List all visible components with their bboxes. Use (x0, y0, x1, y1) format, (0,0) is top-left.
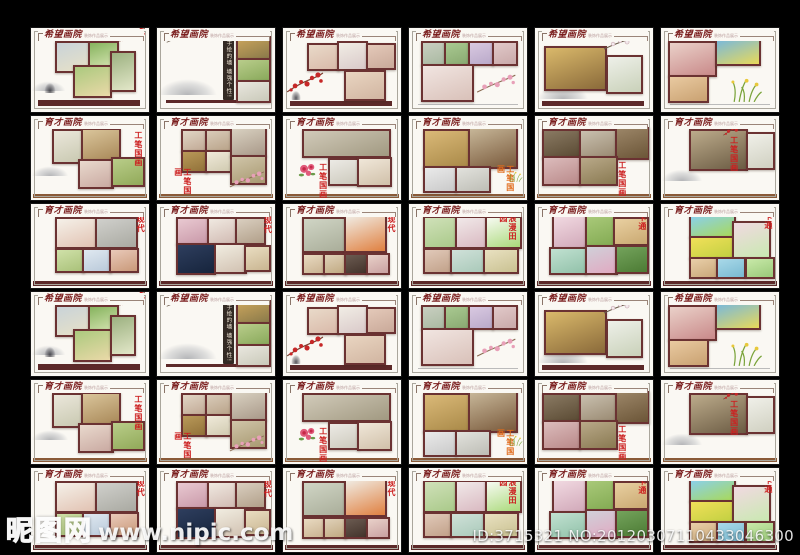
photo-thumb (81, 392, 122, 425)
photo-thumb (542, 129, 581, 159)
header-bracket (668, 473, 673, 481)
page-header: 希望画院装饰作品展示 (164, 29, 270, 41)
photo-thumb (444, 41, 470, 66)
photo-thumb (307, 307, 341, 335)
vertical-slogan-panel: 手绘的墙 墙强个性! (223, 38, 234, 100)
header-line (110, 300, 144, 301)
photo-thumb (615, 127, 650, 160)
header-line (362, 388, 396, 389)
header-bracket (290, 121, 295, 129)
shelf-bar (537, 281, 650, 286)
photo-thumb (230, 419, 267, 449)
nipic-url: www.nipic.com (98, 522, 293, 545)
page-header: 育才画院装饰作品展示 (290, 117, 396, 129)
header-line (614, 36, 648, 37)
header-line (488, 212, 522, 213)
style-calligraphy-label: 工笔国画 (496, 429, 514, 464)
header-line (362, 476, 396, 477)
page-subtitle: 装饰作品展示 (84, 473, 108, 479)
page-subtitle: 装饰作品展示 (462, 121, 486, 127)
photo-thumb (109, 248, 139, 273)
shelf-bar (290, 101, 391, 106)
header-line (236, 36, 270, 37)
page-header: 希望画院装饰作品展示 (668, 293, 774, 305)
photo-thumb (668, 75, 709, 103)
style-calligraphy-label: 浪漫田园 (499, 478, 517, 508)
brochure-page-thumb: 育才画院装饰作品展示工笔国画 (31, 116, 149, 200)
header-line (362, 124, 396, 125)
page-subtitle: 装饰作品展示 (84, 209, 108, 215)
page-header: 希望画院装饰作品展示 (290, 293, 396, 305)
page-title: 育才画院 (422, 119, 460, 128)
page-title: 育才画院 (296, 383, 334, 392)
page-header: 育才画院装饰作品展示 (542, 381, 648, 393)
vertical-slogan-panel: 手绘的墙 墙强个性! (223, 302, 234, 364)
brochure-page-thumb: 希望画院装饰作品展示 (31, 28, 149, 112)
photo-thumb (236, 80, 271, 103)
photo-thumb (423, 248, 453, 275)
ink-wash-mountains-decor (31, 165, 69, 176)
photo-thumb (668, 41, 717, 77)
ink-rock-decor (43, 346, 57, 357)
photo-thumb (302, 481, 347, 517)
header-line (488, 388, 522, 389)
style-calligraphy-label: 现代 (136, 215, 145, 233)
photo-thumb (745, 257, 775, 279)
header-line (488, 300, 522, 301)
header-bracket (668, 209, 673, 217)
style-calligraphy-label: 工笔国画 (618, 425, 627, 461)
page-title: 育才画院 (170, 471, 208, 480)
photo-thumb (73, 329, 111, 362)
page-header: 希望画院装饰作品展示 (416, 293, 522, 305)
photo-thumb (81, 128, 122, 161)
photo-thumb (423, 129, 469, 169)
photo-thumb (542, 393, 581, 423)
photo-thumb (689, 479, 735, 502)
page-header: 希望画院装饰作品展示 (416, 29, 522, 41)
shelf-bar (33, 194, 146, 198)
photo-thumb (492, 41, 518, 66)
header-bracket (542, 473, 547, 481)
page-header: 育才画院装饰作品展示 (290, 381, 396, 393)
header-bracket (668, 385, 673, 393)
photo-thumb (366, 307, 396, 334)
header-line (488, 124, 522, 125)
grass-flowers-decor (729, 77, 767, 102)
header-bracket (290, 33, 295, 41)
photo-thumb (423, 430, 457, 457)
page-subtitle: 装饰作品展示 (210, 33, 234, 39)
photo-thumb (205, 393, 233, 416)
page-subtitle: 装饰作品展示 (336, 33, 360, 39)
page-subtitle: 装饰作品展示 (336, 297, 360, 303)
header-line (740, 212, 774, 213)
photo-thumb (615, 245, 649, 273)
header-line (614, 212, 648, 213)
photo-thumb (328, 422, 360, 450)
page-header: 希望画院装饰作品展示 (290, 29, 396, 41)
header-bracket (38, 473, 43, 481)
style-calligraphy-label: 工笔国画 (729, 136, 738, 172)
photo-thumb (544, 46, 607, 90)
photo-thumb (176, 217, 210, 245)
photo-thumb (468, 125, 518, 168)
thumbnail-grid: 希望画院装饰作品展示希望画院装饰作品展示手绘的墙 墙强个性!希望画院装饰作品展示… (0, 0, 800, 555)
photo-thumb (455, 430, 491, 457)
header-line (362, 36, 396, 37)
shelf-bar (33, 458, 146, 462)
header-line (110, 36, 144, 37)
header-line (740, 300, 774, 301)
shelf-bar (159, 545, 272, 550)
header-line (488, 36, 522, 37)
ink-wash-mountains-decor (31, 429, 69, 440)
photo-thumb (214, 243, 248, 273)
page-subtitle: 装饰作品展示 (462, 209, 486, 215)
style-calligraphy-label: 现代 (136, 479, 145, 497)
shelf-bar (285, 281, 398, 286)
header-bracket (38, 209, 43, 217)
plum-blossom-decor (285, 70, 325, 95)
photo-thumb (95, 481, 138, 514)
photo-thumb (205, 150, 233, 173)
shelf-bar (159, 281, 272, 286)
page-header: 希望画院装饰作品展示 (542, 29, 648, 41)
style-calligraphy-label: 工笔国画 (134, 131, 143, 167)
brochure-page-thumb: 育才画院装饰作品展示卡通 (661, 204, 779, 288)
ink-rock-decor (290, 90, 302, 99)
shelf-bar (537, 458, 650, 462)
photo-thumb (423, 166, 457, 193)
brochure-page-thumb: 育才画院装饰作品展示工笔国画 (283, 116, 401, 200)
brochure-page-thumb: 希望画院装饰作品展示 (409, 28, 527, 112)
photo-thumb (585, 245, 619, 275)
style-calligraphy-label: 工笔国画 (134, 395, 143, 431)
page-subtitle: 装饰作品展示 (336, 385, 360, 391)
photo-thumb (205, 414, 233, 437)
header-bracket (416, 209, 421, 217)
header-bracket (542, 33, 547, 41)
header-bracket (38, 121, 43, 129)
photo-thumb (357, 157, 392, 187)
page-header: 育才画院装饰作品展示 (164, 117, 270, 129)
photo-thumb (715, 39, 760, 66)
photo-thumb (78, 159, 114, 189)
page-subtitle: 装饰作品展示 (588, 33, 612, 39)
brochure-page-thumb: 育才画院装饰作品展示现代 (157, 204, 275, 288)
page-title: 育才画院 (674, 207, 712, 216)
ink-wash-mountains-decor (157, 341, 218, 359)
ink-wash-mountains-decor (31, 344, 66, 355)
photo-thumb (236, 58, 271, 81)
header-bracket (416, 297, 421, 305)
brochure-page-thumb: 育才画院装饰作品展示工笔国画 (409, 380, 527, 464)
shelf-bar (290, 365, 391, 370)
header-line (614, 476, 648, 477)
brochure-page-thumb: 希望画院装饰作品展示 (31, 292, 149, 376)
photo-thumb (492, 305, 518, 330)
header-bracket (416, 385, 421, 393)
header-line (236, 388, 270, 389)
page-subtitle: 装饰作品展示 (84, 121, 108, 127)
header-bracket (668, 121, 673, 129)
photo-thumb (344, 479, 387, 517)
header-bracket (542, 385, 547, 393)
shelf-bar (670, 104, 769, 106)
photo-thumb (421, 305, 447, 330)
photo-thumb (423, 480, 458, 513)
page-title: 育才画院 (170, 383, 208, 392)
header-bracket (164, 209, 169, 217)
page-header: 希望画院装饰作品展示 (164, 293, 270, 305)
page-title: 育才画院 (422, 383, 460, 392)
photo-thumb (455, 166, 491, 193)
header-bracket (290, 473, 295, 481)
header-bracket (416, 121, 421, 129)
page-title: 育才画院 (296, 471, 334, 480)
page-title: 育才画院 (674, 383, 712, 392)
page-subtitle: 装饰作品展示 (588, 297, 612, 303)
header-bracket (290, 385, 295, 393)
page-title: 育才画院 (44, 383, 82, 392)
photo-thumb (483, 248, 519, 275)
ink-rock-decor (290, 354, 302, 363)
brochure-page-thumb: 育才画院装饰作品展示工笔国画 (157, 380, 275, 464)
photo-thumb (302, 129, 391, 158)
header-line (236, 124, 270, 125)
style-calligraphy-label: 工笔国画 (174, 432, 192, 464)
page-header: 希望画院装饰作品展示 (38, 29, 144, 41)
shelf-bar (542, 101, 643, 106)
photo-thumb (82, 248, 112, 273)
photo-thumb (176, 481, 210, 509)
photo-thumb (421, 64, 475, 102)
page-subtitle: 装饰作品展示 (462, 33, 486, 39)
page-title: 希望画院 (170, 295, 208, 304)
page-title: 希望画院 (422, 31, 460, 40)
header-line (110, 124, 144, 125)
photo-thumb (689, 236, 735, 259)
style-calligraphy-label: 现代 (387, 479, 396, 497)
style-calligraphy-label: 现代 (387, 215, 396, 233)
ink-rock-decor (43, 82, 57, 93)
photo-thumb (585, 479, 616, 513)
brochure-page-thumb: 希望画院装饰作品展示 (535, 28, 653, 112)
page-title: 希望画院 (296, 295, 334, 304)
photo-thumb (716, 257, 746, 279)
header-line (614, 300, 648, 301)
photo-thumb (455, 480, 487, 513)
header-bracket (164, 33, 169, 41)
page-header: 育才画院装饰作品展示 (416, 205, 522, 217)
photo-thumb (689, 257, 718, 279)
brochure-page-thumb: 希望画院装饰作品展示 (535, 292, 653, 376)
page-subtitle: 装饰作品展示 (588, 121, 612, 127)
page-header: 育才画院装饰作品展示 (290, 205, 396, 217)
page-subtitle: 装饰作品展示 (336, 121, 360, 127)
style-calligraphy-label: 工笔国画 (318, 163, 327, 199)
header-line (236, 212, 270, 213)
header-line (488, 476, 522, 477)
photo-thumb (55, 248, 85, 273)
header-line (236, 300, 270, 301)
page-header: 希望画院装饰作品展示 (668, 29, 774, 41)
photo-thumb (606, 55, 643, 94)
shelf-bar (537, 545, 650, 550)
photo-thumb (344, 215, 387, 253)
photo-thumb (579, 129, 618, 159)
photo-thumb (366, 253, 390, 275)
brochure-page-thumb: 育才画院装饰作品展示浪漫田园 (409, 204, 527, 288)
photo-thumb (455, 216, 487, 249)
header-bracket (164, 297, 169, 305)
page-title: 希望画院 (674, 31, 712, 40)
page-header: 育才画院装饰作品展示 (164, 469, 270, 481)
shelf-bar (411, 545, 524, 550)
shelf-bar (33, 281, 146, 286)
header-line (110, 476, 144, 477)
brochure-page-thumb: 育才画院装饰作品展示工笔国画 (157, 116, 275, 200)
page-header: 育才画院装饰作品展示 (668, 117, 774, 129)
style-calligraphy-label: 工笔国画 (618, 161, 627, 197)
photo-thumb (366, 517, 390, 539)
photo-thumb (235, 217, 266, 245)
brochure-page-thumb: 育才画院装饰作品展示工笔国画 (283, 380, 401, 464)
page-subtitle: 装饰作品展示 (714, 33, 738, 39)
shelf-bar (285, 194, 398, 198)
shelf-bar (537, 194, 650, 198)
photo-thumb (110, 315, 136, 357)
photo-thumb (176, 243, 217, 275)
photo-thumb (689, 500, 735, 523)
page-subtitle: 装饰作品展示 (588, 209, 612, 215)
page-subtitle: 装饰作品展示 (210, 209, 234, 215)
photo-thumb (585, 215, 616, 249)
page-subtitle: 装饰作品展示 (462, 297, 486, 303)
style-calligraphy-label: 工笔国画 (318, 427, 327, 463)
shelf-bar (38, 100, 139, 106)
header-bracket (290, 209, 295, 217)
brochure-page-thumb: 希望画院装饰作品展示 (283, 28, 401, 112)
photo-thumb (302, 393, 391, 422)
photo-thumb (302, 217, 347, 253)
photo-thumb (421, 328, 475, 366)
style-calligraphy-label: 工笔国画 (174, 168, 192, 200)
photo-thumb (423, 393, 469, 433)
page-header: 育才画院装饰作品展示 (164, 381, 270, 393)
brochure-page-thumb: 育才画院装饰作品展示现代 (283, 204, 401, 288)
photo-thumb (746, 132, 775, 170)
page-header: 希望画院装饰作品展示 (38, 293, 144, 305)
photo-thumb (328, 158, 360, 186)
page-header: 育才画院装饰作品展示 (542, 205, 648, 217)
page-subtitle: 装饰作品展示 (210, 121, 234, 127)
style-calligraphy-label: 现代 (263, 480, 272, 498)
page-header: 育才画院装饰作品展示 (290, 469, 396, 481)
header-bracket (416, 473, 421, 481)
photo-thumb (181, 393, 209, 416)
photo-thumb (230, 155, 267, 185)
photo-thumb (423, 512, 453, 539)
photo-thumb (421, 41, 447, 66)
brochure-page-thumb: 希望画院装饰作品展示 (661, 292, 779, 376)
page-subtitle: 装饰作品展示 (714, 297, 738, 303)
header-line (362, 300, 396, 301)
page-title: 育才画院 (548, 471, 586, 480)
brochure-page-thumb: 希望画院装饰作品展示 (661, 28, 779, 112)
header-bracket (38, 33, 43, 41)
header-line (110, 388, 144, 389)
page-subtitle: 装饰作品展示 (714, 121, 738, 127)
photo-thumb (366, 43, 396, 70)
brochure-page-thumb: 希望画院装饰作品展示 (409, 292, 527, 376)
brochure-page-thumb: 希望画院装饰作品展示手绘的墙 墙强个性! (157, 28, 275, 112)
page-title: 希望画院 (548, 295, 586, 304)
photo-thumb (606, 319, 643, 358)
page-title: 育才画院 (170, 207, 208, 216)
photo-thumb (552, 479, 588, 513)
photo-thumb (95, 217, 138, 250)
photo-thumb (110, 51, 136, 93)
header-line (740, 36, 774, 37)
page-subtitle: 装饰作品展示 (462, 473, 486, 479)
shelf-bar (542, 365, 643, 370)
brochure-page-thumb: 希望画院装饰作品展示 (283, 292, 401, 376)
photo-thumb (579, 420, 618, 450)
page-header: 希望画院装饰作品展示 (542, 293, 648, 305)
nipic-logo: 昵图网 (6, 518, 93, 545)
page-title: 育才画院 (674, 119, 712, 128)
photo-thumb (337, 305, 368, 335)
shelf-bar (418, 368, 517, 370)
header-bracket (164, 473, 169, 481)
header-line (614, 388, 648, 389)
page-header: 育才画院装饰作品展示 (668, 381, 774, 393)
photo-thumb (244, 245, 270, 272)
photo-thumb (668, 305, 717, 341)
photo-thumb (344, 334, 386, 365)
image-id-text: ID:3715321 NO:20120307110433046300 (473, 529, 795, 544)
photo-thumb (344, 70, 386, 101)
photo-thumb (73, 65, 111, 98)
page-subtitle: 装饰作品展示 (84, 385, 108, 391)
photo-thumb (542, 420, 581, 450)
photo-thumb (689, 215, 735, 238)
pink-blossom-branch-decor (475, 73, 517, 94)
page-header: 育才画院装饰作品展示 (38, 205, 144, 217)
page-header: 育才画院装饰作品展示 (38, 469, 144, 481)
shelf-bar (418, 104, 517, 106)
page-header: 育才画院装饰作品展示 (38, 381, 144, 393)
page-title: 育才画院 (422, 471, 460, 480)
header-line (110, 212, 144, 213)
page-subtitle: 装饰作品展示 (714, 473, 738, 479)
header-line (362, 212, 396, 213)
photo-thumb (423, 216, 458, 249)
header-bracket (164, 121, 169, 129)
header-bracket (416, 33, 421, 41)
page-header: 育才画院装饰作品展示 (416, 117, 522, 129)
page-title: 育才画院 (44, 207, 82, 216)
peony-painting-decor (297, 160, 318, 181)
page-title: 育才画院 (296, 119, 334, 128)
photo-thumb (230, 391, 267, 421)
plum-blossom-decor (285, 334, 325, 359)
shelf-bar (285, 458, 398, 462)
brochure-page-thumb: 育才画院装饰作品展示工笔国画 (661, 116, 779, 200)
header-bracket (164, 385, 169, 393)
